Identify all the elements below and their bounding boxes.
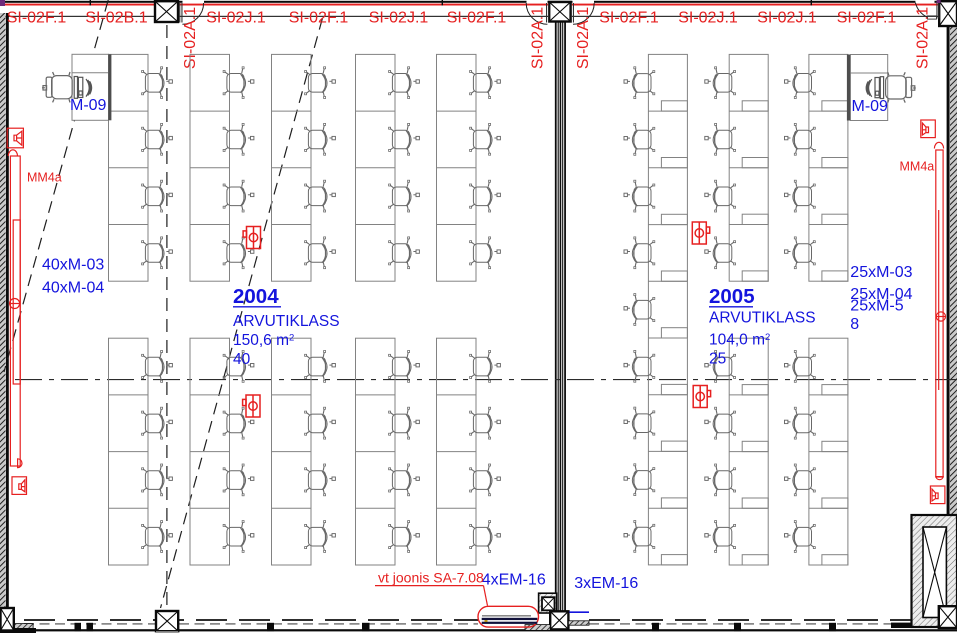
svg-text:25xM-03: 25xM-03: [850, 264, 912, 281]
svg-text:104,0 m2: 104,0 m2: [709, 331, 770, 348]
svg-text:SI-02A.1: SI-02A.1: [530, 7, 547, 69]
svg-text:SI-02J.1: SI-02J.1: [757, 10, 817, 27]
svg-text:SI-02A.1: SI-02A.1: [575, 7, 592, 69]
svg-text:2005: 2005: [709, 285, 755, 308]
svg-text:25: 25: [709, 350, 726, 367]
svg-text:SI-02F.1: SI-02F.1: [599, 10, 659, 27]
svg-text:40xM-04: 40xM-04: [42, 280, 104, 297]
svg-text:M-09: M-09: [70, 97, 107, 114]
svg-text:SI-02B.1: SI-02B.1: [85, 10, 147, 27]
svg-text:SI-02F.1: SI-02F.1: [289, 10, 349, 27]
svg-text:150,6 m2: 150,6 m2: [233, 332, 294, 349]
svg-text:MM4a: MM4a: [900, 160, 935, 174]
svg-text:2004: 2004: [233, 285, 279, 308]
svg-text:SI-02F.1: SI-02F.1: [837, 10, 897, 27]
svg-text:ARVUTIKLASS: ARVUTIKLASS: [709, 310, 816, 327]
svg-text:SI-02J.1: SI-02J.1: [206, 10, 266, 27]
svg-text:SI-02F.1: SI-02F.1: [447, 10, 507, 27]
svg-text:SI-02F.1: SI-02F.1: [7, 10, 67, 27]
svg-text:SI-02A.1: SI-02A.1: [915, 7, 932, 69]
svg-text:8: 8: [850, 316, 859, 333]
svg-text:MM4a: MM4a: [27, 171, 62, 185]
svg-text:3xEM-16: 3xEM-16: [574, 575, 638, 592]
svg-text:25xM-5: 25xM-5: [850, 298, 903, 315]
svg-text:SI-02J.1: SI-02J.1: [678, 10, 738, 27]
svg-text:SI-02A.1: SI-02A.1: [182, 7, 199, 69]
svg-text:vt joonis SA-7.08: vt joonis SA-7.08: [378, 570, 484, 586]
svg-text:4xEM-16: 4xEM-16: [482, 572, 546, 589]
svg-text:40xM-03: 40xM-03: [42, 257, 104, 274]
svg-text:M-09: M-09: [852, 98, 889, 115]
svg-text:SI-02J.1: SI-02J.1: [369, 10, 429, 27]
svg-text:40: 40: [233, 351, 251, 368]
svg-text:ARVUTIKLASS: ARVUTIKLASS: [233, 313, 340, 330]
